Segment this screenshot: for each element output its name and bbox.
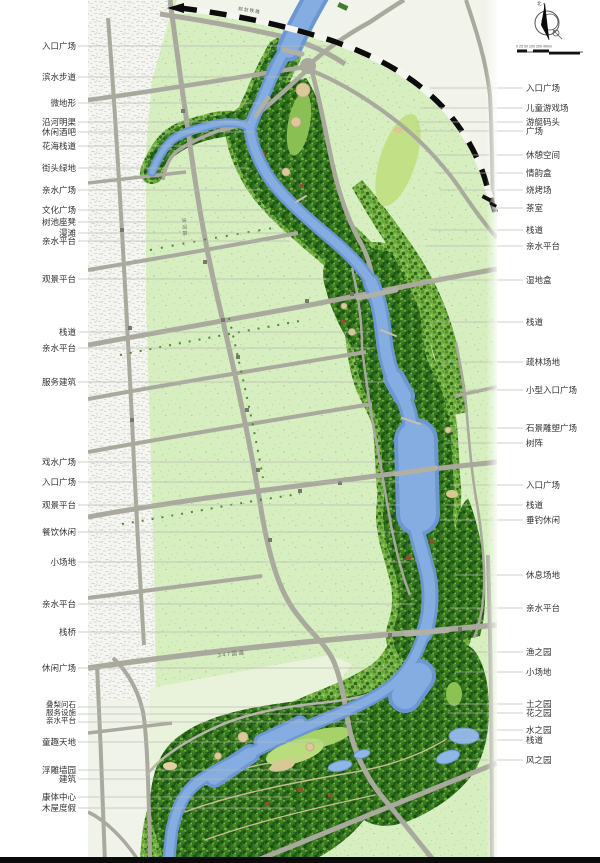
svg-text:烧烤场: 烧烤场	[526, 185, 552, 195]
svg-text:— — —: — — —	[498, 132, 509, 153]
svg-text:栈道: 栈道	[59, 327, 77, 337]
svg-text:垂钓休闲: 垂钓休闲	[526, 515, 560, 525]
svg-text:康体中心: 康体中心	[42, 792, 77, 802]
svg-text:亲水平台: 亲水平台	[42, 236, 76, 246]
svg-text:亲水平台: 亲水平台	[526, 241, 560, 251]
svg-text:疏林场地: 疏林场地	[526, 357, 561, 367]
svg-text:0 25 50 100 200: 0 25 50 100 200 400m	[516, 45, 552, 49]
svg-text:儿童游戏场: 儿童游戏场	[526, 103, 569, 113]
svg-text:小场地: 小场地	[50, 557, 76, 567]
svg-text:建筑: 建筑	[59, 774, 77, 784]
svg-text:休息场地: 休息场地	[526, 570, 561, 580]
svg-text:服务建筑: 服务建筑	[42, 377, 77, 387]
svg-text:亲水平台: 亲水平台	[46, 715, 76, 725]
svg-text:花之园: 花之园	[526, 708, 552, 718]
svg-text:微地形: 微地形	[50, 98, 76, 108]
svg-text:文化广场: 文化广场	[42, 205, 76, 215]
svg-text:休闲酒吧: 休闲酒吧	[42, 127, 77, 137]
svg-text:小场地: 小场地	[526, 667, 552, 677]
svg-text:石景雕塑广场: 石景雕塑广场	[526, 423, 577, 433]
svg-text:花海栈道: 花海栈道	[42, 141, 77, 151]
svg-text:栈道: 栈道	[526, 500, 544, 510]
svg-text:观景平台: 观景平台	[42, 500, 76, 510]
svg-text:入口广场: 入口广场	[42, 477, 76, 487]
svg-text:入口广场: 入口广场	[42, 41, 76, 51]
svg-text:北: 北	[537, 0, 542, 7]
svg-text:观景平台: 观景平台	[42, 274, 76, 284]
svg-text:戏水广场: 戏水广场	[42, 457, 76, 467]
svg-text:休闲广场: 休闲广场	[42, 663, 76, 673]
svg-text:木屋度假: 木屋度假	[42, 803, 77, 813]
svg-text:入口广场: 入口广场	[526, 83, 560, 93]
svg-text:休憩空间: 休憩空间	[526, 150, 560, 160]
svg-text:水之园: 水之园	[526, 725, 552, 735]
svg-text:滨水步道: 滨水步道	[42, 72, 77, 82]
svg-text:栈桥: 栈桥	[59, 627, 77, 637]
svg-text:入口广场: 入口广场	[526, 480, 560, 490]
svg-text:茶室: 茶室	[526, 203, 544, 213]
svg-text:亲水平台: 亲水平台	[42, 343, 76, 353]
svg-text:童趣天地: 童趣天地	[42, 737, 77, 747]
svg-text:情韵盒: 情韵盒	[526, 168, 552, 178]
svg-text:餐饮休闲: 餐饮休闲	[42, 527, 76, 537]
svg-text:栈道: 栈道	[526, 317, 544, 327]
svg-text:小型入口广场: 小型入口广场	[526, 385, 577, 395]
svg-text:风之园: 风之园	[526, 755, 552, 765]
svg-text:亲水平台: 亲水平台	[526, 603, 560, 613]
svg-text:湿地盒: 湿地盒	[526, 275, 552, 285]
svg-text:广场: 广场	[526, 126, 543, 136]
svg-text:栈道: 栈道	[526, 735, 544, 745]
svg-text:树阵: 树阵	[526, 438, 544, 448]
svg-text:树池座凳: 树池座凳	[42, 217, 77, 227]
svg-text:亲水广场: 亲水广场	[42, 185, 76, 195]
svg-text:渔之园: 渔之园	[526, 647, 552, 657]
svg-text:沿河明渠: 沿河明渠	[42, 117, 77, 127]
svg-text:街头绿地: 街头绿地	[42, 163, 77, 173]
svg-text:栈道: 栈道	[526, 225, 544, 235]
svg-text:亲水平台: 亲水平台	[42, 599, 76, 609]
